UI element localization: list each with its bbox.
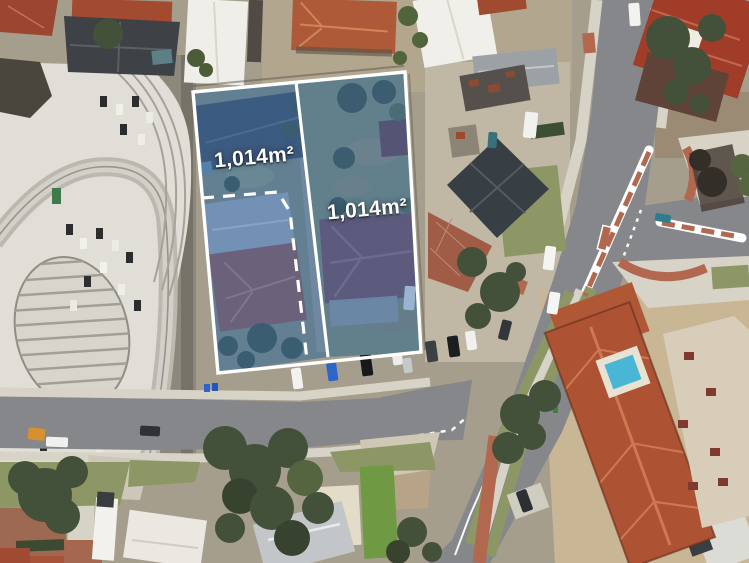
crane-equipment — [52, 188, 61, 204]
aerial-scene — [0, 0, 749, 563]
parcel-overlays — [193, 72, 421, 373]
excavator — [27, 427, 45, 441]
aerial-photo: 1,014m² 1,014m² — [0, 0, 749, 563]
